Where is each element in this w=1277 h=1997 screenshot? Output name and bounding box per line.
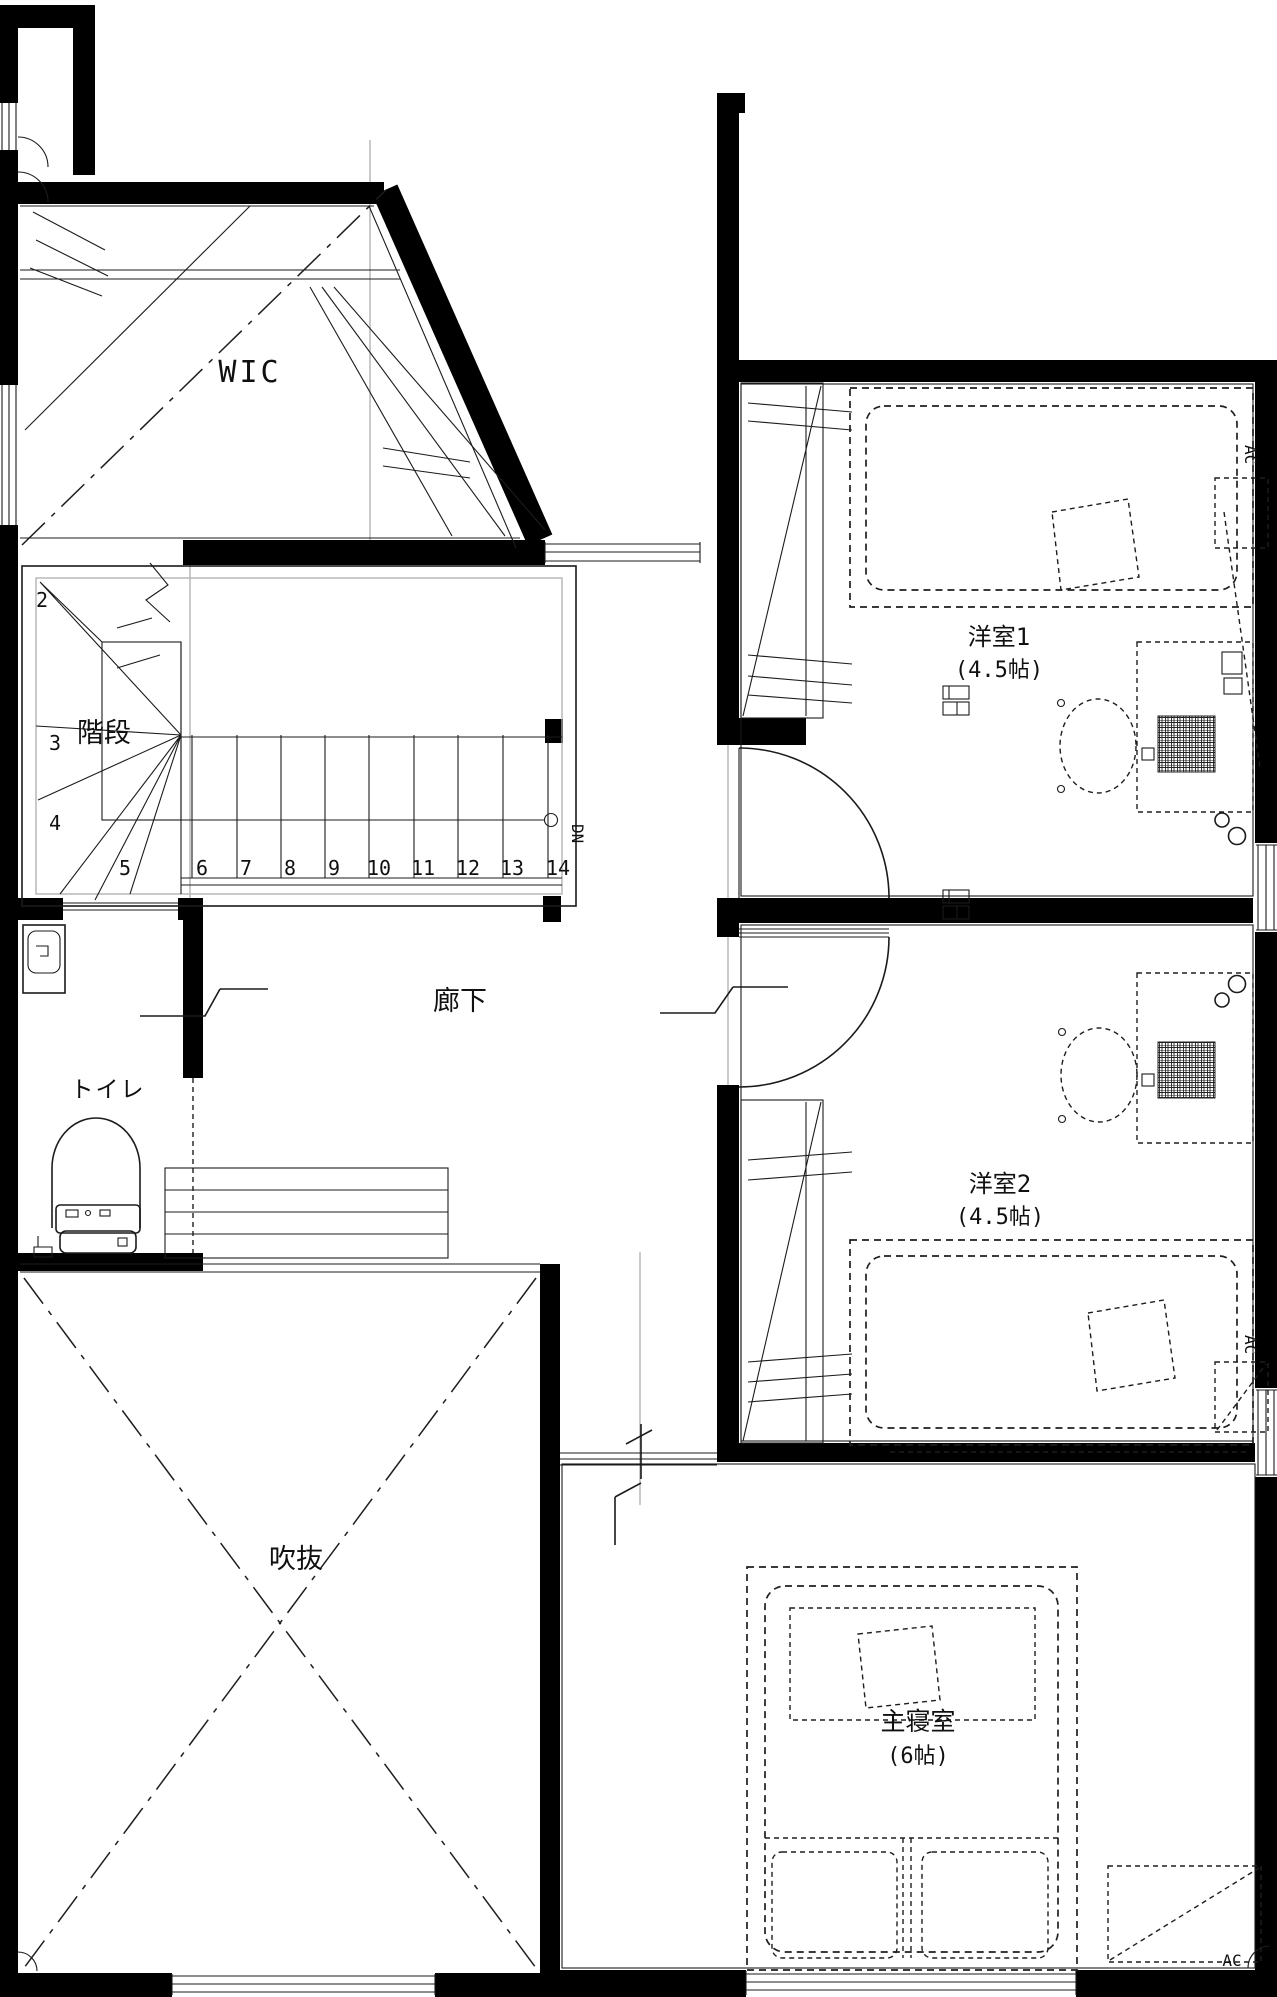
desk-gadget-icon [1224,678,1242,694]
desk-gadget-icon [1222,652,1242,674]
master-bedroom: AC 主寝室 (6帖) [562,1452,1270,1970]
closet-bedroom2 [741,1100,852,1443]
window-hallway-north [545,542,700,563]
chimney-right-wall [73,5,95,175]
room-label-stairs: 階段 [77,718,131,749]
pillow-icon [1052,499,1139,590]
pillow-icon [1088,1300,1175,1391]
room-label-wic: WIC [218,355,281,390]
shelf-icon-bedroom1 [943,686,969,715]
void-right-wall [540,1264,560,1997]
bed-icon-bedroom1 [850,388,1253,607]
stool-icon [1215,993,1229,1007]
section-cut-mark-3 [615,1424,652,1545]
right-exterior-wall [1255,360,1277,1997]
stair-number: 7 [240,856,252,880]
mouse-icon [1142,1074,1154,1086]
keyboard-icon [1158,1042,1215,1098]
room-label-bedroom1: 洋室1 [968,623,1030,651]
stair-number: 5 [119,856,131,880]
bedroom-divider-wall [739,898,1253,923]
room-size-master: (6帖) [887,1744,949,1769]
stair-number: 2 [36,588,48,612]
void-louver-panel [165,1168,448,1258]
bed-icon-bedroom2 [850,1240,1253,1445]
chair-icon-bedroom2 [1059,1028,1138,1123]
door-arc-bedroom1 [739,748,889,898]
stair-number: 14 [546,856,570,880]
stair-number: 12 [456,856,480,880]
grid-lines [190,95,728,1505]
toilet-south-wall [0,1253,203,1271]
stair-number: 3 [49,731,61,755]
mouse-icon [1142,748,1154,760]
bedroom1: AC 洋室1 (4.5帖) [739,383,1268,898]
staircase: 2 3 4 5 6 7 8 9 10 11 12 13 14 DN 階段 [22,563,587,906]
room-label-hallway: 廊下 [433,986,487,1017]
center-wall-lower [717,1085,739,1445]
toilet-north-wall-left [0,898,63,920]
stair-number: 4 [49,811,61,835]
sink-icon [23,925,65,993]
bedroom1-north-wall [718,360,1277,382]
stool-icon [1229,976,1246,993]
void-room: 吹抜 [18,1168,540,1971]
ac-label: AC [1241,445,1260,464]
keyboard-icon [1158,716,1215,772]
desk-icon-bedroom2 [1137,973,1253,1143]
closet-bedroom1 [741,383,852,718]
walls [0,5,1277,1997]
toilet-east-wall [183,898,203,1078]
cushion-icon [922,1852,1048,1958]
doorway-master-north [560,1453,717,1465]
stair-corner-wall [543,896,561,922]
section-cut-mark-1 [140,989,268,1016]
stool-icon [1215,813,1229,827]
stair-number: 11 [411,856,435,880]
stair-number: 10 [367,856,391,880]
bedroom2: AC 洋室2 (4.5帖) [739,890,1268,1445]
cushion-icon [772,1852,897,1958]
toilet-icon [34,1118,140,1257]
stair-number: 8 [284,856,296,880]
floor-plan-page: 2 3 4 5 6 7 8 9 10 11 12 13 14 DN 階段 [0,0,1277,1997]
section-cut-mark-2 [660,987,788,1013]
pillow-icon [858,1626,940,1708]
stair-number: 6 [196,856,208,880]
room-label-bedroom2: 洋室2 [969,1170,1031,1198]
chair-icon-bedroom1 [1058,699,1137,793]
room-size-bedroom1: (4.5帖) [955,658,1043,683]
desk-icon-bedroom1 [1137,642,1253,812]
bedroom1-door-stub-wall [739,718,806,745]
wic-south-wall [183,540,545,565]
hallway: 廊下 [140,986,788,1545]
stool-icon [1229,828,1246,845]
wic-north-wall [14,182,384,204]
room-size-bedroom2: (4.5帖) [956,1205,1044,1230]
room-label-void: 吹抜 [269,1544,323,1575]
stair-number: 13 [500,856,524,880]
left-exterior-wall [0,5,18,1997]
center-wall-middle [717,898,739,937]
center-wall-upper [717,93,739,745]
floor-plan-2f: 2 3 4 5 6 7 8 9 10 11 12 13 14 DN 階段 [0,0,1277,1997]
ac-label: AC [1241,1335,1260,1354]
ac-label: AC [1222,1951,1241,1970]
room-label-toilet: トイレ [71,1077,146,1103]
stair-down-label: DN [568,824,587,843]
toilet-room: トイレ [23,903,193,1257]
ac-unit-master: AC [1108,1866,1270,1970]
stair-number: 9 [328,856,340,880]
room-label-master: 主寝室 [880,1707,955,1736]
door-arc-bedroom2 [739,929,889,1087]
stair-direction-circle [545,814,558,827]
wic-slant-wall [385,190,540,540]
